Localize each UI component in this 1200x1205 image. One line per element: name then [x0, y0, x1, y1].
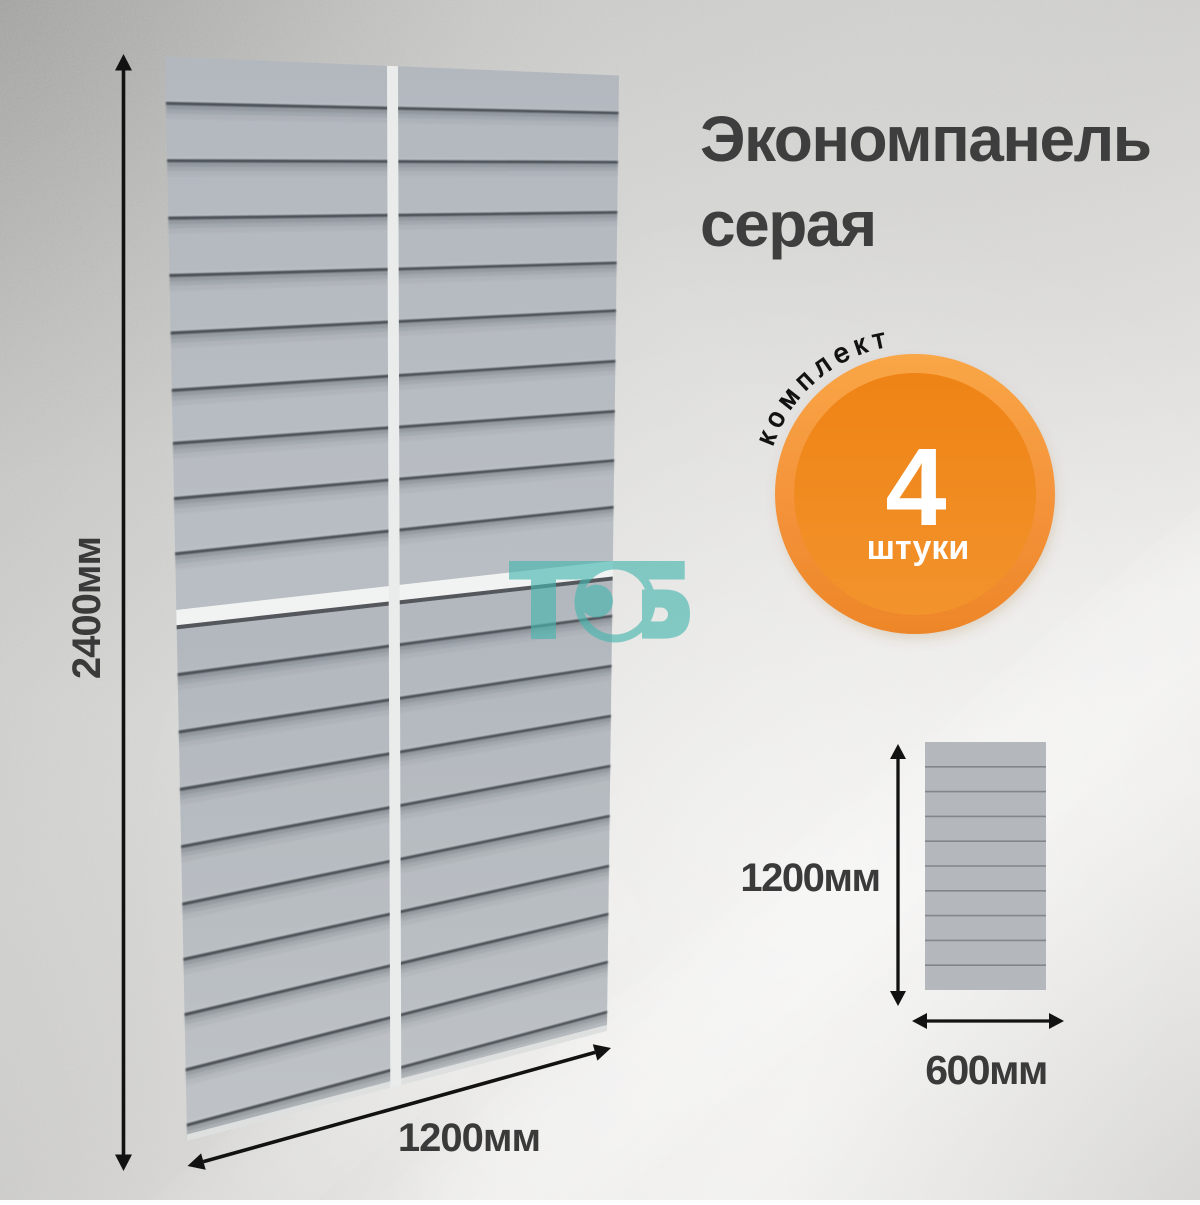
svg-text:Экономпанель: Экономпанель — [700, 103, 1151, 175]
svg-text:1200мм: 1200мм — [398, 1116, 540, 1160]
svg-text:600мм: 600мм — [925, 1047, 1047, 1093]
svg-text:серая: серая — [700, 188, 876, 260]
svg-text:1200мм: 1200мм — [740, 856, 879, 900]
svg-text:штуки: штуки — [867, 529, 970, 567]
svg-text:2400мм: 2400мм — [65, 537, 109, 679]
